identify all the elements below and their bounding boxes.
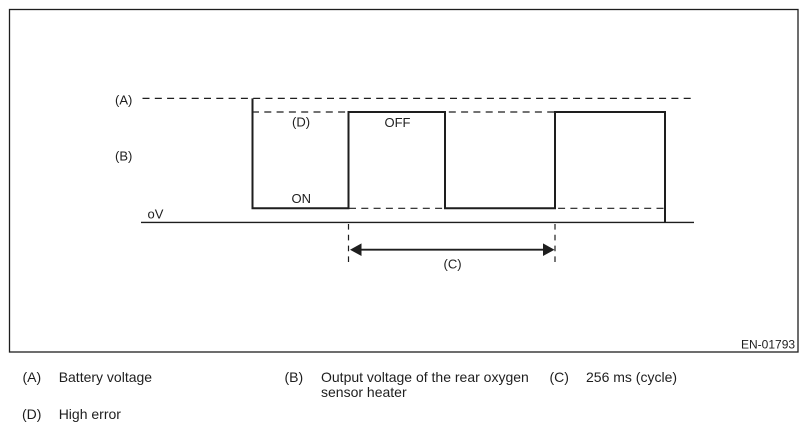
svg-text:oV: oV bbox=[148, 206, 164, 221]
svg-text:ON: ON bbox=[292, 191, 312, 206]
svg-text:(C): (C) bbox=[444, 256, 462, 271]
svg-text:(A): (A) bbox=[115, 92, 132, 107]
svg-text:OFF: OFF bbox=[385, 115, 411, 130]
svg-text:EN-01793: EN-01793 bbox=[741, 337, 795, 351]
svg-text:(D): (D) bbox=[292, 115, 310, 130]
svg-text:(B): (B) bbox=[115, 149, 132, 164]
